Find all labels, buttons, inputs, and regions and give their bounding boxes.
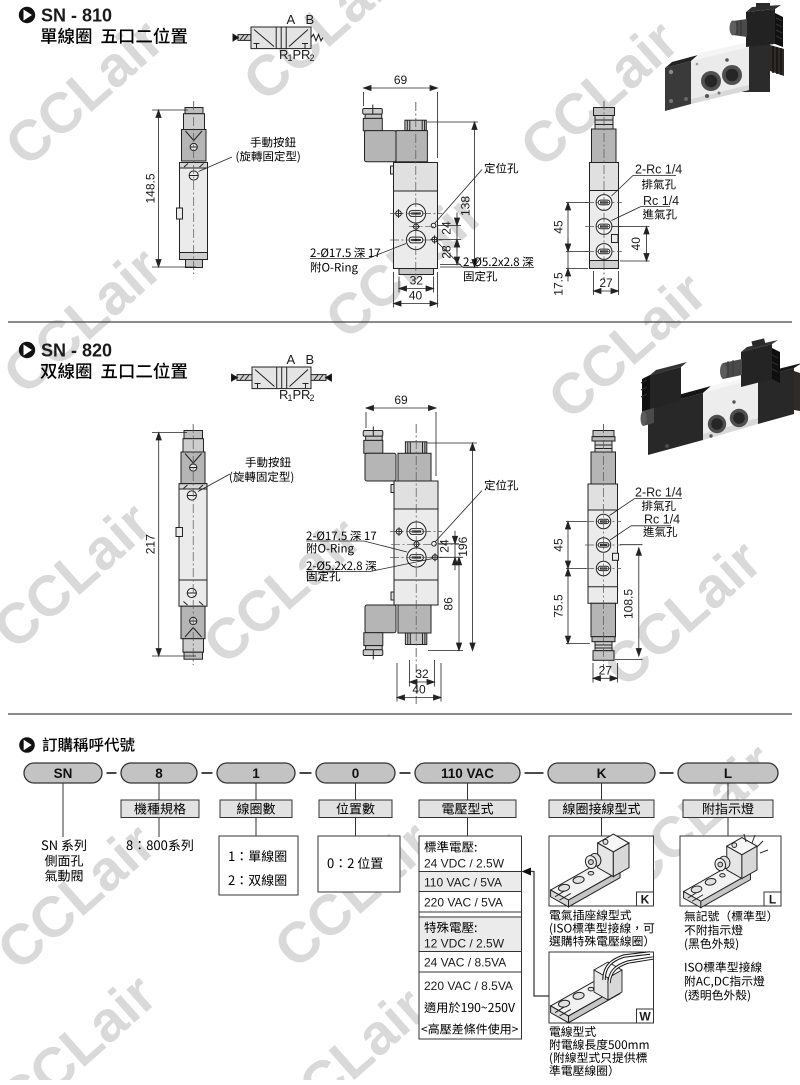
svg-text:217: 217: [144, 534, 158, 554]
svg-text:220 VAC / 8.5VA: 220 VAC / 8.5VA: [424, 979, 513, 993]
svg-text:40: 40: [409, 289, 423, 303]
svg-text:86: 86: [442, 597, 456, 611]
svg-text:2: 2: [310, 53, 315, 63]
svg-text:A: A: [287, 12, 296, 27]
svg-text:8: 8: [155, 766, 163, 781]
svg-text:110 VAC / 5VA: 110 VAC / 5VA: [424, 876, 502, 890]
svg-text:A: A: [287, 352, 296, 367]
svg-text:17.5: 17.5: [552, 272, 566, 296]
svg-text:27: 27: [599, 276, 613, 290]
svg-text:40: 40: [629, 237, 643, 251]
svg-text:45: 45: [552, 220, 566, 234]
svg-text:2-Rc 1/4: 2-Rc 1/4: [635, 163, 682, 177]
svg-text:2-Rc 1/4: 2-Rc 1/4: [635, 486, 682, 500]
svg-text:40: 40: [412, 683, 426, 697]
svg-text:W: W: [639, 1010, 651, 1024]
svg-text:24 VDC / 2.5W: 24 VDC / 2.5W: [424, 857, 505, 871]
svg-text:45: 45: [552, 538, 566, 552]
svg-text:K: K: [641, 893, 650, 907]
svg-text:196: 196: [456, 536, 470, 556]
svg-text:B: B: [306, 12, 315, 27]
svg-text:1: 1: [252, 766, 260, 781]
svg-text:138: 138: [459, 196, 473, 216]
svg-text:220 VAC / 5VA: 220 VAC / 5VA: [424, 896, 503, 910]
svg-text:P: P: [293, 387, 302, 402]
svg-text:75.5: 75.5: [552, 594, 566, 618]
svg-text:Rc 1/4: Rc 1/4: [644, 513, 680, 527]
svg-text:B: B: [306, 352, 315, 367]
svg-text:SN - 810: SN - 810: [41, 6, 112, 26]
svg-text:32: 32: [415, 667, 429, 681]
svg-text:P: P: [293, 47, 302, 62]
svg-text:32: 32: [410, 274, 424, 288]
svg-text:110 VAC: 110 VAC: [441, 766, 494, 781]
svg-text:L: L: [769, 893, 776, 907]
svg-text:Rc 1/4: Rc 1/4: [643, 194, 679, 208]
svg-text:24: 24: [440, 221, 454, 235]
svg-text:24 VAC / 8.5VA: 24 VAC / 8.5VA: [424, 956, 506, 970]
svg-text:69: 69: [394, 393, 408, 407]
svg-text:108.5: 108.5: [622, 589, 636, 619]
svg-text:2: 2: [310, 393, 315, 403]
svg-text:148.5: 148.5: [144, 173, 158, 203]
svg-text:L: L: [724, 766, 732, 781]
svg-text:SN - 820: SN - 820: [41, 341, 112, 361]
svg-text:27: 27: [599, 663, 613, 677]
svg-text:K: K: [597, 766, 607, 781]
svg-text:0: 0: [352, 766, 360, 781]
svg-text:SN: SN: [54, 766, 73, 781]
svg-text:12 VDC / 2.5W: 12 VDC / 2.5W: [424, 937, 505, 951]
svg-text:24: 24: [438, 539, 452, 553]
svg-text:69: 69: [394, 73, 408, 87]
